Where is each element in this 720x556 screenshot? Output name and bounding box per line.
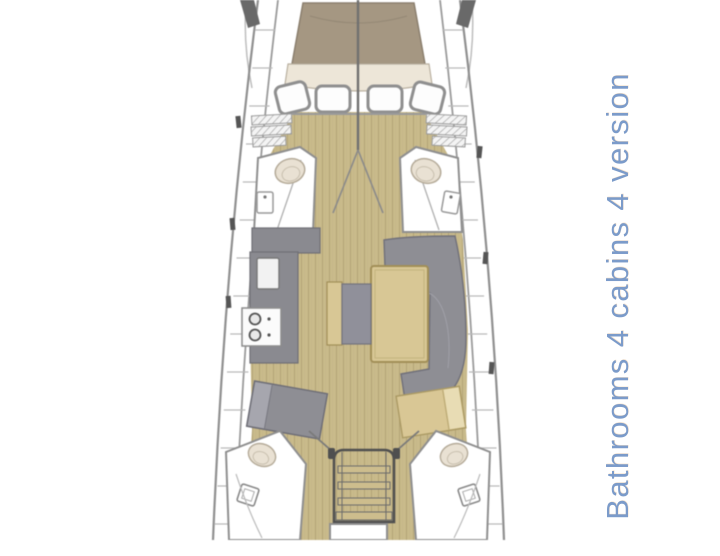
aft-head-starboard: [410, 431, 490, 540]
galley-sink-icon: [257, 258, 279, 289]
center-bench: [327, 282, 371, 345]
aft-head-port: [226, 431, 306, 540]
stove-icon: [242, 308, 281, 346]
companionway-entry: [330, 524, 387, 540]
forward-head-port: [254, 147, 316, 232]
salon-table: [371, 266, 428, 362]
plan-caption: Bathrooms 4 cabins 4 version: [596, 36, 640, 556]
yacht-floorplan-page: Bathrooms 4 cabins 4 version: [0, 0, 720, 540]
sink-icon: [441, 191, 460, 214]
forward-head-starboard: [400, 147, 462, 232]
aft-cabin-bed-starboard: [396, 386, 466, 437]
sink-icon: [257, 192, 273, 213]
